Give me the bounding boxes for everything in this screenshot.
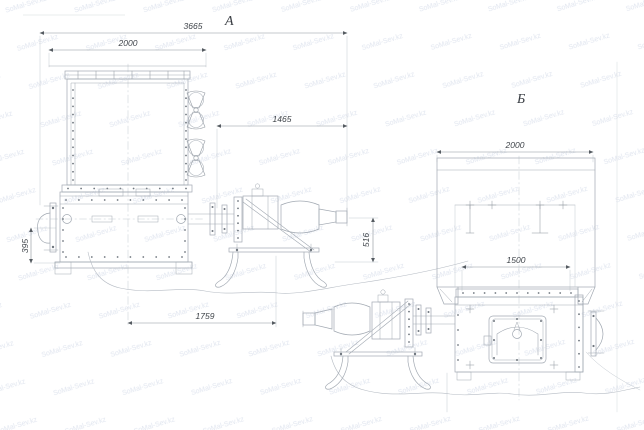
technical-drawing-svg: SoMal-Sev.kz SoMal-Sev.kz А bbox=[0, 0, 644, 430]
dim-2000-a-label: 2000 bbox=[118, 38, 138, 48]
dim-1465-label: 1465 bbox=[273, 114, 292, 124]
dim-3665-label: 3665 bbox=[184, 21, 203, 31]
view-a-label: А bbox=[224, 14, 234, 29]
dim-1759-label: 1759 bbox=[196, 311, 215, 321]
drawing-sheet: SoMal-Sev.kz SoMal-Sev.kz А bbox=[0, 0, 644, 430]
dim-516-label: 516 bbox=[361, 233, 371, 247]
dim-395-label: 395 bbox=[20, 239, 30, 253]
watermark-layer bbox=[0, 0, 644, 430]
dim-1500-label: 1500 bbox=[507, 255, 526, 265]
dim-2000-b-label: 2000 bbox=[505, 140, 525, 150]
view-b-label: Б bbox=[516, 92, 525, 107]
